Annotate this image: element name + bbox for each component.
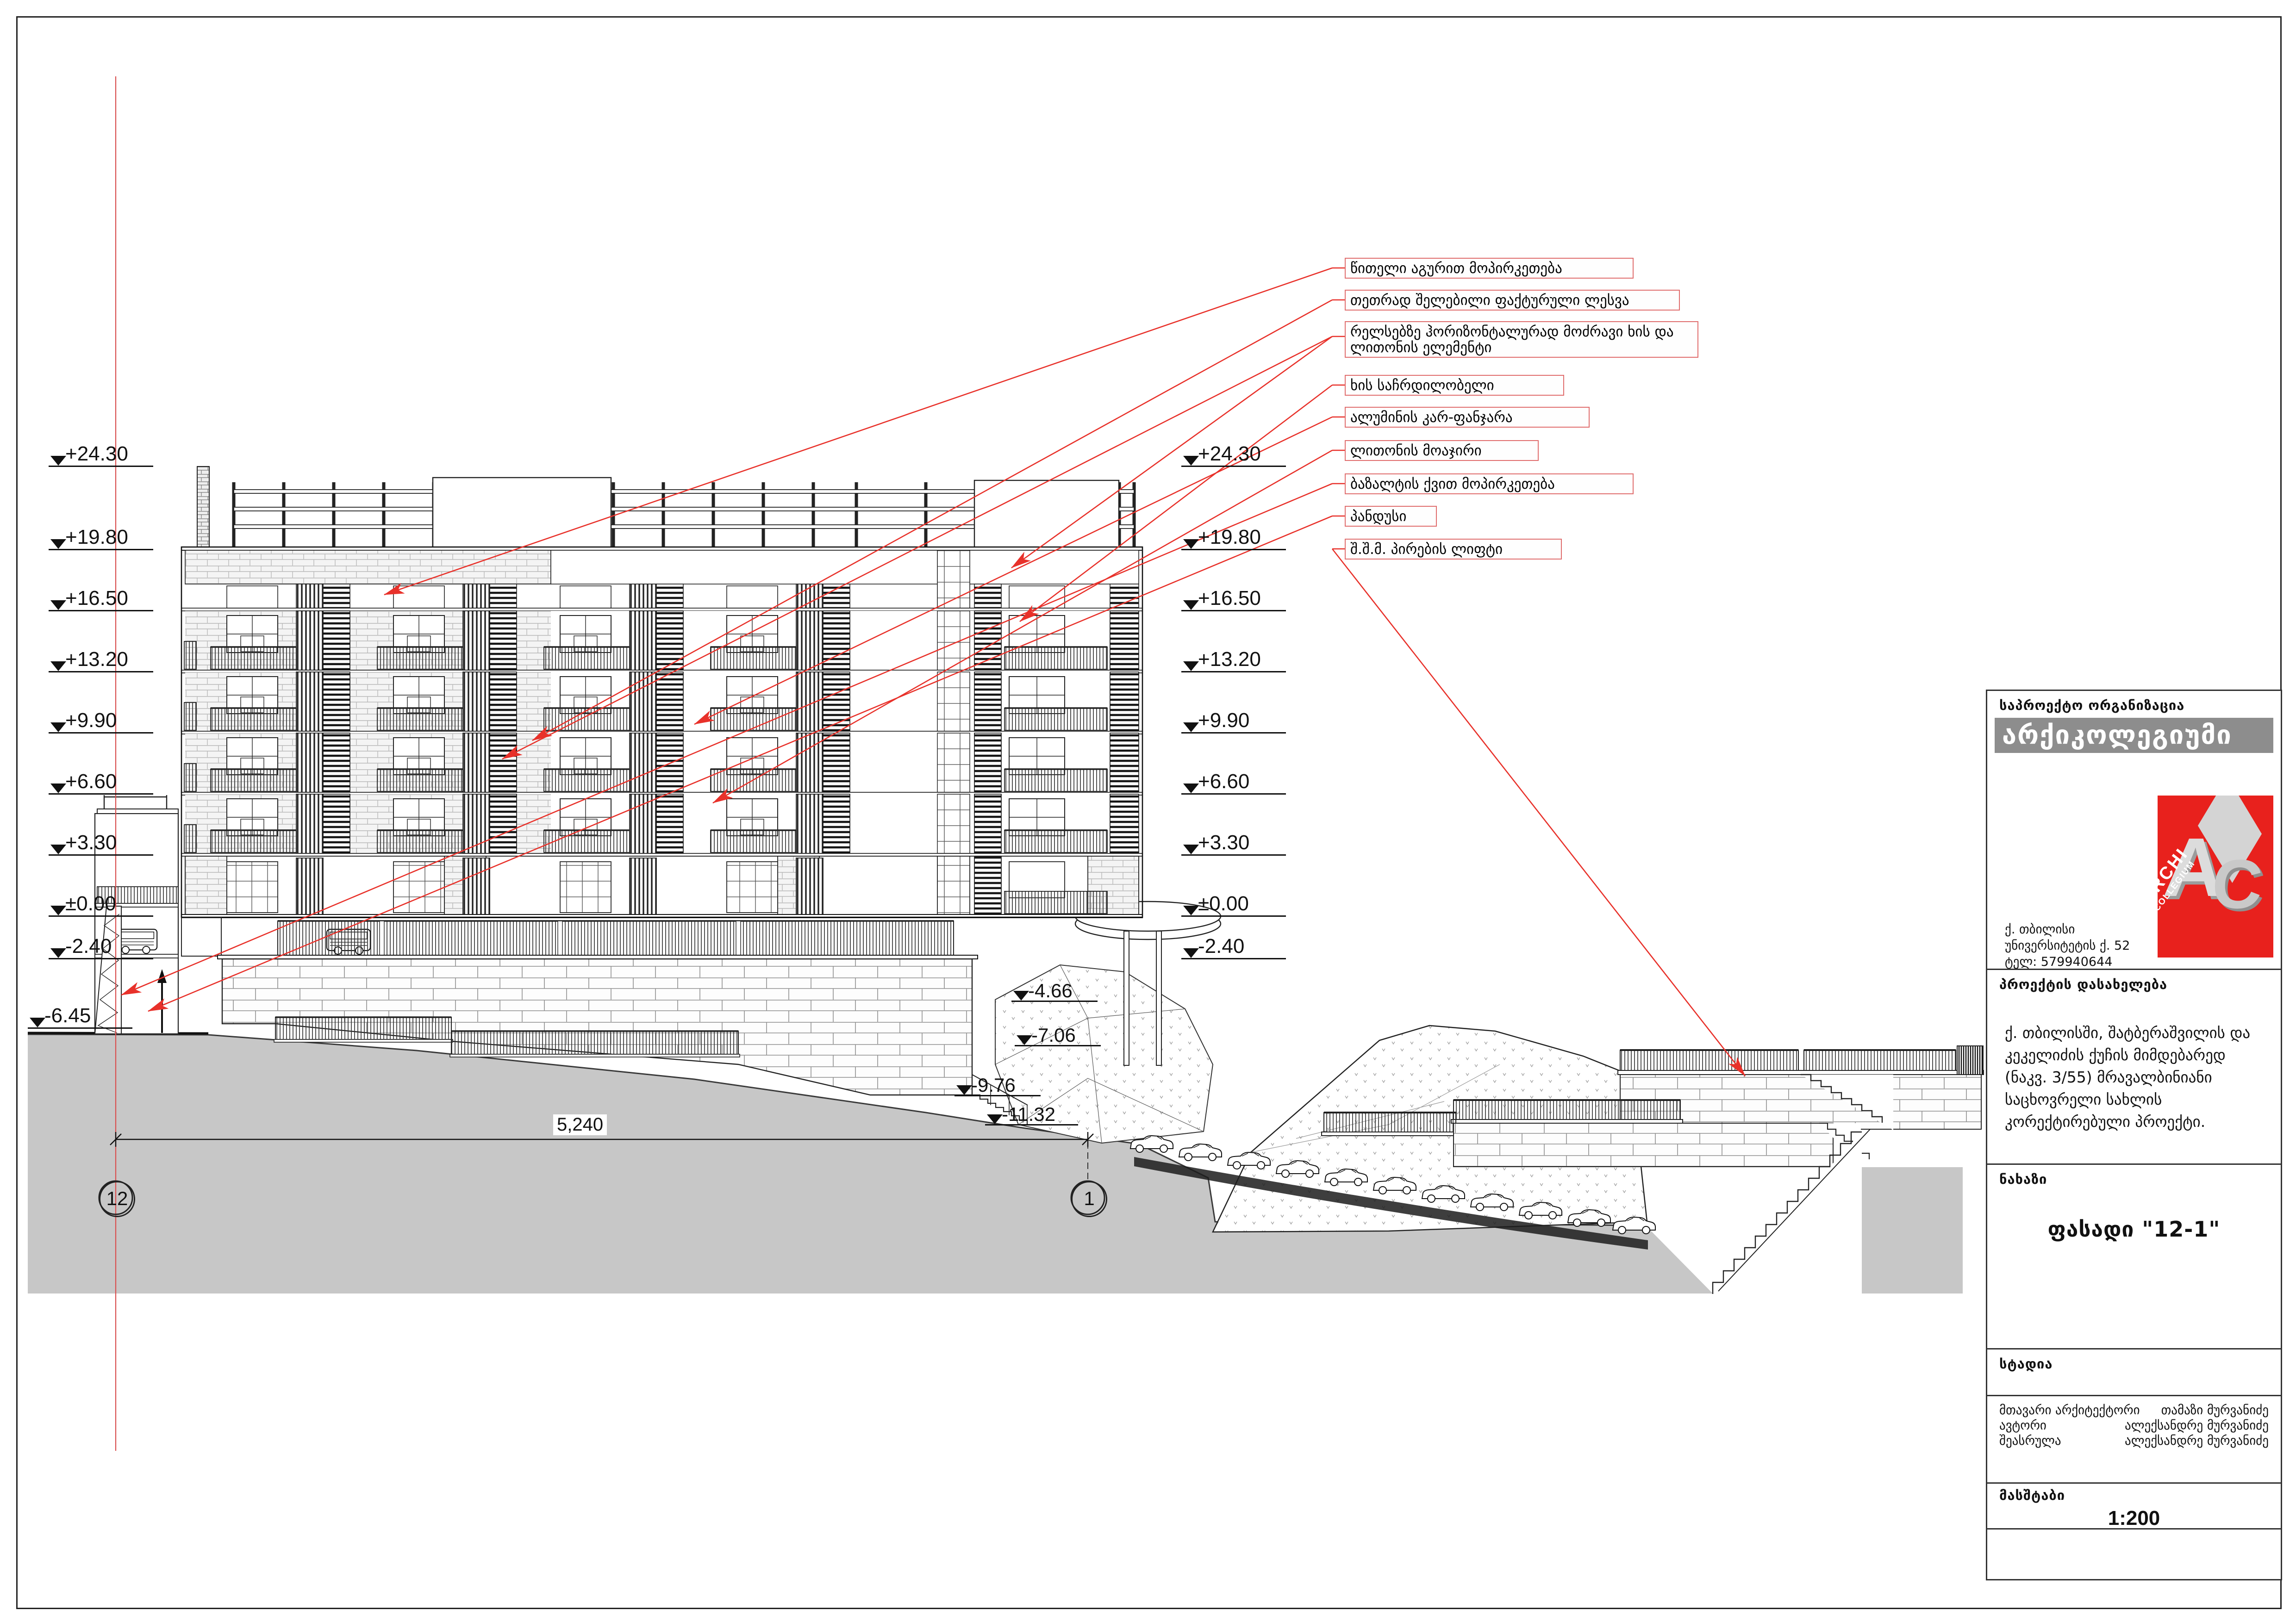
title-block-drawing-section: ნახაზი ფასადი "12-1" [1987, 1165, 2281, 1349]
drawing-label: ნახაზი [1987, 1165, 2281, 1187]
level-marker: +3.30 [49, 832, 153, 856]
annotation-label: ხის საჩრდილობელი [1345, 375, 1564, 396]
depth-marker: -11.32 [985, 1104, 1078, 1126]
level-marker: +13.20 [1181, 649, 1286, 672]
title-block-empty-section [1987, 1530, 2281, 1579]
title-block-credits-section: მთავარი არქიტექტორი თამაზი მურვანიძე ავტ… [1987, 1396, 2281, 1484]
level-marker: +24.30 [49, 443, 153, 467]
annotation-label: თეთრად შელებილი ფაქტურული ლესვა [1345, 290, 1680, 311]
level-marker: +6.60 [1181, 771, 1286, 795]
scale-label: მასშტაბი [1987, 1484, 2281, 1503]
credit-row: ავტორი ალექსანდრე მურვანიძე [1987, 1418, 2281, 1433]
elevation-drawing [0, 0, 2296, 1623]
level-marker: +3.30 [1181, 832, 1286, 856]
grid-bubble-1: 1 [1071, 1181, 1107, 1217]
org-address: ქ. თბილისი უნივერსიტეტის ქ. 52 ტელ: 5799… [2005, 921, 2130, 970]
level-marker: +19.80 [1181, 527, 1286, 550]
level-marker: +24.30 [1181, 443, 1286, 467]
company-logo: A C ARCHI COLLEGIUM [2158, 796, 2273, 958]
level-marker: -6.45 [28, 1005, 132, 1029]
dimension-total: 5,240 [553, 1114, 607, 1135]
level-marker: ±0.00 [1181, 893, 1286, 917]
level-marker: +6.60 [49, 771, 153, 795]
level-marker: -2.40 [1181, 936, 1286, 959]
scale-value: 1:200 [1987, 1507, 2281, 1530]
level-marker: +19.80 [49, 527, 153, 550]
level-marker: +16.50 [1181, 588, 1286, 611]
annotation-label: ლითონის მოაჯირი [1345, 440, 1539, 461]
building [181, 466, 1142, 959]
depth-marker: -4.66 [1011, 980, 1098, 1002]
annotation-label: რელსებზე ჰორიზონტალურად მოძრავი ხის და ლ… [1345, 321, 1698, 358]
depth-marker: -9.76 [955, 1075, 1041, 1096]
annotation-label: შ.შ.მ. პირების ლიფტი [1345, 539, 1562, 560]
level-marker: +9.90 [1181, 710, 1286, 734]
annotation-label: ალუმინის კარ-ფანჯარა [1345, 407, 1590, 428]
annotation-label: წითელი აგურით მოპირკეთება [1345, 258, 1634, 279]
stage-label: სტადია [1987, 1349, 2281, 1372]
drawing-sheet: { "sheet": { "dimension_total": "5,240",… [0, 0, 2296, 1623]
org-label: საპროექტო ორგანიზაცია [1987, 691, 2281, 713]
credit-row: შეასრულა ალექსანდრე მურვანიძე [1987, 1433, 2281, 1449]
project-label: პროექტის დასახელება [1987, 970, 2281, 992]
drawing-title: ფასადი "12-1" [1987, 1217, 2281, 1242]
level-marker: -2.40 [49, 936, 153, 959]
title-block-scale-section: მასშტაბი 1:200 [1987, 1484, 2281, 1530]
annotation-label: პანდუსი [1345, 506, 1437, 527]
logo-letter-c: C [2210, 849, 2265, 919]
annotation-label: ბაზალტის ქვით მოპირკეთება [1345, 473, 1634, 494]
title-block-stage-section: სტადია [1987, 1349, 2281, 1396]
title-block-org-section: საპროექტო ორგანიზაცია არქიკოლეგიუმი ქ. თ… [1987, 691, 2281, 970]
grid-bubble-12: 12 [99, 1181, 135, 1217]
level-marker: +9.90 [49, 710, 153, 734]
depth-marker: -7.06 [1015, 1025, 1101, 1046]
level-marker: +16.50 [49, 588, 153, 611]
title-block-project-section: პროექტის დასახელება ქ. თბილისში, შატბერა… [1987, 970, 2281, 1165]
org-name-banner: არქიკოლეგიუმი [1995, 718, 2273, 753]
title-block: საპროექტო ორგანიზაცია არქიკოლეგიუმი ქ. თ… [1986, 690, 2282, 1580]
credit-row: მთავარი არქიტექტორი თამაზი მურვანიძე [1987, 1403, 2281, 1418]
level-marker: ±0.00 [49, 893, 153, 917]
level-marker: +13.20 [49, 649, 153, 672]
project-description: ქ. თბილისში, შატბერაშვილის და კეკელიძის … [1987, 992, 2281, 1133]
